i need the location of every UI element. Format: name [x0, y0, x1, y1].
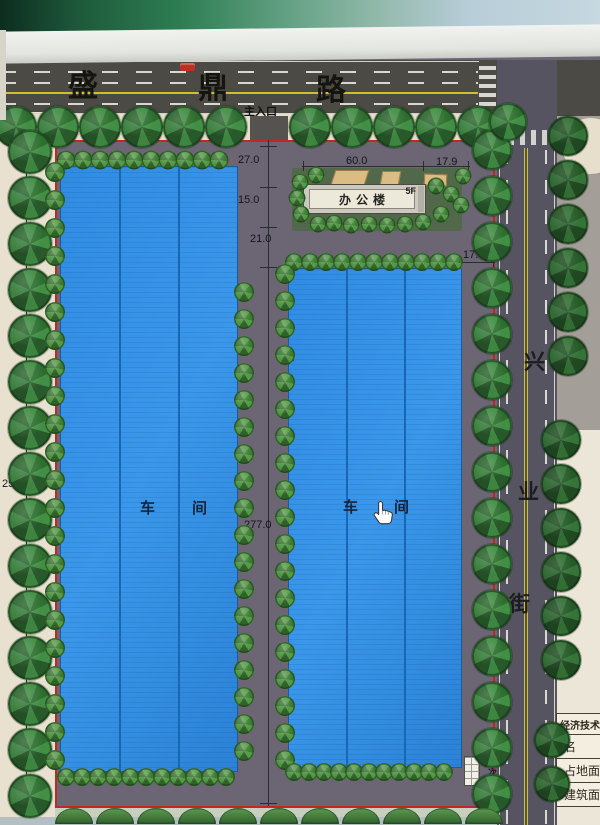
tree: [234, 633, 254, 653]
car: [180, 63, 195, 71]
tree: [275, 696, 295, 716]
tree: [445, 253, 463, 271]
tree: [45, 582, 65, 602]
road-name-char: 鼎: [198, 74, 228, 104]
dim-line-17-3: [458, 262, 495, 263]
tree: [45, 498, 65, 518]
road-name-char: 路: [316, 76, 346, 106]
tree: [548, 248, 588, 288]
tree: [275, 615, 295, 635]
roof-division-line: [178, 167, 180, 771]
tree: [45, 638, 65, 658]
dim-label: 15.0: [238, 195, 259, 206]
tree: [234, 660, 254, 680]
bezel-edge: [0, 30, 6, 120]
tree: [45, 442, 65, 462]
lane-dashes: [0, 103, 478, 105]
tree: [433, 206, 450, 223]
tree: [234, 552, 254, 572]
road-name-char: 街: [509, 594, 530, 615]
tree: [275, 642, 295, 662]
tree: [548, 116, 588, 156]
tree: [326, 215, 343, 232]
tree: [472, 544, 512, 584]
tree: [275, 507, 295, 527]
dim-line-vertical-center: [268, 128, 269, 806]
dim-label: 21.0: [250, 234, 271, 245]
roof-division-line: [404, 269, 406, 767]
window-top-strip: [0, 24, 600, 63]
tree: [234, 336, 254, 356]
tree: [541, 420, 581, 460]
tree: [275, 345, 295, 365]
dim-tick: [423, 161, 424, 171]
office-floors-badge: 5F: [405, 186, 416, 196]
tree: [45, 722, 65, 742]
tree: [45, 470, 65, 490]
tree: [45, 414, 65, 434]
tree: [45, 386, 65, 406]
tree: [379, 217, 396, 234]
entrance-driveway: [250, 116, 288, 140]
tree: [205, 106, 247, 148]
tree: [472, 498, 512, 538]
workshop-label-char: 车: [140, 501, 155, 516]
tree: [121, 106, 163, 148]
dim-label: 17.9: [436, 157, 457, 168]
tree: [541, 508, 581, 548]
dim-tick: [260, 187, 277, 188]
tree: [275, 588, 295, 608]
tree: [234, 390, 254, 410]
site-plan-image[interactable]: 盛 鼎 路 兴 业 街 办公楼 5F 车 间 车 间: [0, 0, 600, 825]
office-building: 办公楼 5F: [303, 184, 426, 214]
dim-tick: [260, 267, 277, 268]
workshop-label-char: 间: [192, 501, 207, 516]
tree: [45, 218, 65, 238]
tree: [548, 160, 588, 200]
tree: [45, 610, 65, 630]
tree: [548, 292, 588, 332]
tree: [275, 723, 295, 743]
road-name-char: 兴: [524, 352, 545, 373]
tree: [534, 722, 570, 758]
tree: [234, 525, 254, 545]
tree: [331, 106, 373, 148]
tree: [275, 453, 295, 473]
tree: [308, 167, 325, 184]
tree: [45, 190, 65, 210]
tree: [45, 526, 65, 546]
tree: [8, 268, 52, 312]
tree: [234, 579, 254, 599]
tree: [289, 106, 331, 148]
tree: [541, 552, 581, 592]
tree: [548, 204, 588, 244]
tree: [435, 763, 453, 781]
tree: [45, 162, 65, 182]
tree: [275, 264, 295, 284]
tree: [275, 480, 295, 500]
dim-tick: [260, 803, 277, 804]
tree: [541, 464, 581, 504]
tree: [343, 217, 360, 234]
tree: [541, 640, 581, 680]
tree: [234, 309, 254, 329]
tree: [455, 168, 472, 185]
road-name-char: 业: [518, 482, 539, 503]
tree: [275, 426, 295, 446]
office-inner: 办公楼: [309, 189, 415, 209]
dim-tick: [260, 227, 277, 228]
tree: [45, 666, 65, 686]
entrance-canopy: [331, 170, 370, 185]
tree: [234, 282, 254, 302]
tree: [489, 103, 527, 141]
tree: [275, 372, 295, 392]
tree: [310, 216, 327, 233]
tree: [217, 768, 235, 786]
roof-division-line: [119, 167, 121, 771]
tree: [472, 268, 512, 308]
tree: [234, 417, 254, 437]
roof-division-line: [346, 269, 348, 767]
tree: [8, 774, 52, 818]
tree: [472, 314, 512, 354]
tree: [234, 687, 254, 707]
tree: [472, 452, 512, 492]
tree: [234, 606, 254, 626]
tree: [275, 534, 295, 554]
tree: [534, 766, 570, 802]
tree: [292, 174, 309, 191]
tree: [373, 106, 415, 148]
entrance-canopy: [380, 171, 401, 185]
tree: [472, 636, 512, 676]
road-name-char: 盛: [68, 72, 98, 102]
tree: [45, 554, 65, 574]
tree: [45, 246, 65, 266]
tree: [234, 498, 254, 518]
tree: [472, 728, 512, 768]
tree: [275, 318, 295, 338]
tree: [361, 216, 378, 233]
office-label: 办公楼: [334, 191, 390, 208]
tree: [415, 106, 457, 148]
tree: [275, 399, 295, 419]
tree: [472, 360, 512, 400]
tree: [234, 471, 254, 491]
tree: [234, 444, 254, 464]
workshop-building-left: [60, 166, 238, 772]
tree: [397, 216, 414, 233]
tree: [275, 669, 295, 689]
dim-tick: [303, 161, 304, 171]
tree: [453, 197, 470, 214]
tree: [45, 274, 65, 294]
tree: [548, 336, 588, 376]
tree: [45, 358, 65, 378]
tree: [472, 590, 512, 630]
tree: [415, 214, 432, 231]
tree: [289, 190, 306, 207]
tree: [45, 694, 65, 714]
tree: [472, 406, 512, 446]
tree: [79, 106, 121, 148]
dim-label: 27.0: [238, 155, 259, 166]
tree: [472, 682, 512, 722]
hand-cursor-icon: [372, 500, 394, 531]
tree: [472, 222, 512, 262]
tree: [234, 714, 254, 734]
dim-label: 60.0: [346, 156, 367, 167]
dim-tick: [260, 146, 277, 147]
tree: [293, 206, 310, 223]
workshop-label-char: 间: [394, 500, 409, 515]
tree: [275, 291, 295, 311]
tree: [45, 750, 65, 770]
tree: [541, 596, 581, 636]
tree: [275, 561, 295, 581]
tree: [163, 106, 205, 148]
tree: [234, 741, 254, 761]
office-end-cap: [418, 186, 424, 212]
workshop-label-char: 车: [343, 500, 358, 515]
tree: [210, 151, 229, 170]
tree: [472, 176, 512, 216]
tree: [234, 363, 254, 383]
tree: [45, 302, 65, 322]
tree: [45, 330, 65, 350]
